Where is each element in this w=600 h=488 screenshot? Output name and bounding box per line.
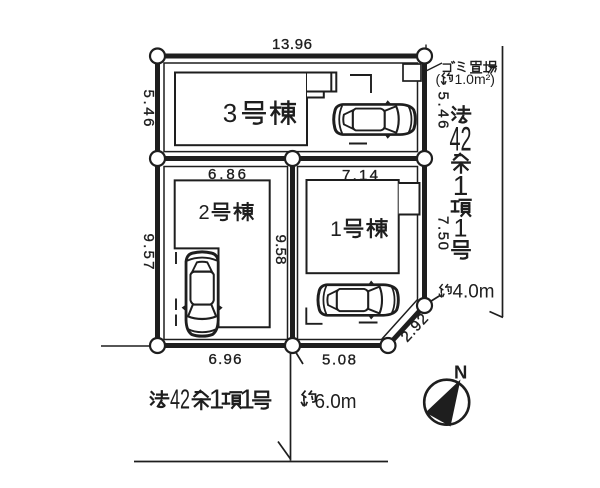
svg-text:9.58: 9.58 [272,235,289,265]
svg-text:7.14: 7.14 [342,167,378,184]
svg-text:(: ( [436,71,441,87]
svg-text:1: 1 [239,384,255,415]
svg-text:5.46: 5.46 [140,90,157,127]
svg-text:1: 1 [330,218,342,241]
svg-text:3: 3 [223,98,237,128]
svg-text:42: 42 [170,384,190,415]
svg-text:9.57: 9.57 [140,234,157,270]
svg-text:1: 1 [209,384,225,415]
svg-text:2: 2 [198,202,209,224]
svg-text:6.86: 6.86 [208,166,246,183]
svg-text:6.0m: 6.0m [315,391,357,413]
svg-text:4.0m: 4.0m [453,282,495,303]
svg-text:1: 1 [454,215,468,243]
svg-text:1.0m²): 1.0m²) [455,71,495,87]
svg-text:1: 1 [453,170,469,201]
svg-text:13.96: 13.96 [272,36,312,53]
svg-text:7.50: 7.50 [435,216,452,250]
svg-text:6.96: 6.96 [209,351,242,368]
svg-text:N: N [454,362,467,383]
svg-text:5.08: 5.08 [322,352,356,369]
